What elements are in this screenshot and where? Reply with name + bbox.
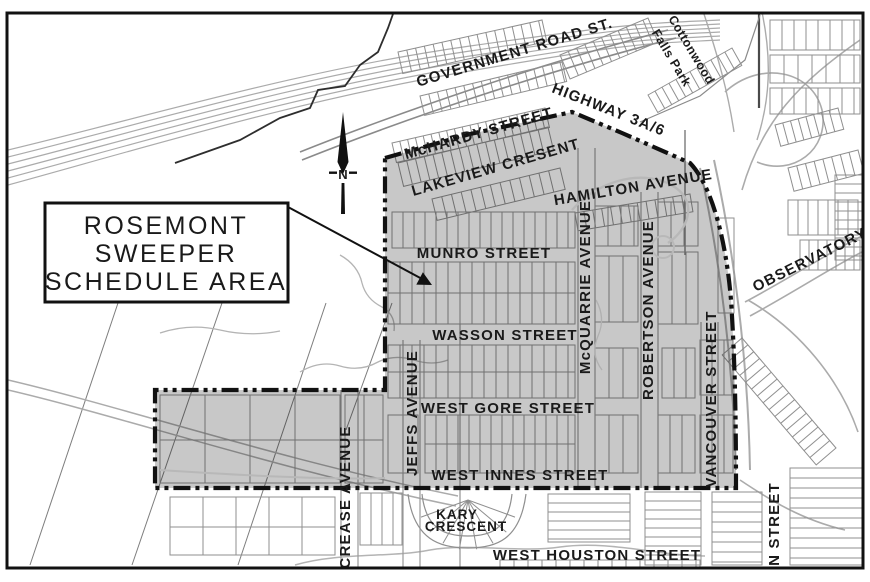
title-box: ROSEMONT SWEEPER SCHEDULE AREA (45, 203, 288, 302)
street-label-kary-line2: CRESCENT (425, 519, 507, 534)
street-label-jeffs: JEFFS AVENUE (404, 350, 421, 476)
title-line-3: SCHEDULE AREA (45, 268, 287, 296)
street-label-an-street: AN STREET (766, 482, 783, 578)
street-label-west-gore: WEST GORE STREET (421, 400, 595, 417)
street-label-wasson: WASSON STREET (432, 327, 578, 344)
street-label-west-innes: WEST INNES STREET (431, 467, 608, 484)
street-label-crease: CREASE AVENUE (337, 425, 354, 568)
north-arrow: N (329, 112, 357, 214)
street-label-vancouver: VANCOUVER STREET (703, 310, 720, 487)
street-label-mcquarrie: McQUARRIE AVENUE (577, 200, 594, 374)
street-label-robertson: ROBERTSON AVENUE (640, 220, 657, 400)
street-label-munro: MUNRO STREET (417, 245, 551, 262)
rosemont-sweeper-map: GOVERNMENT ROAD ST. HIGHWAY 3A/6 Cottonw… (0, 0, 870, 582)
north-arrow-label: N (338, 167, 347, 182)
title-line-2: SWEEPER (95, 240, 238, 268)
map-canvas: GOVERNMENT ROAD ST. HIGHWAY 3A/6 Cottonw… (0, 0, 870, 582)
street-label-west-houston: WEST HOUSTON STREET (493, 547, 701, 564)
title-line-1: ROSEMONT (84, 212, 248, 240)
